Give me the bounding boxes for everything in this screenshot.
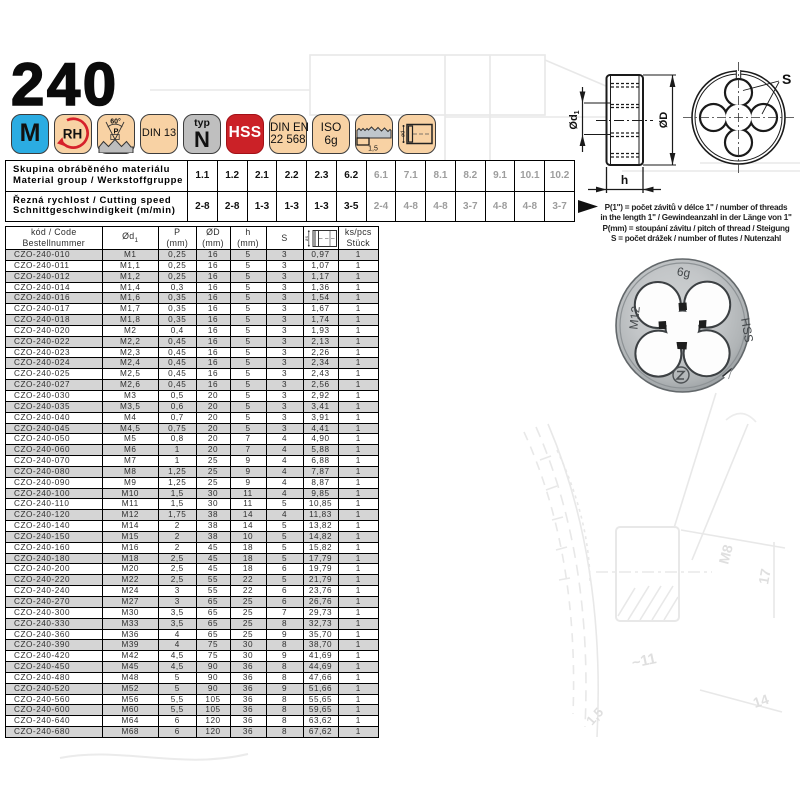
svg-text:60°: 60°: [110, 118, 121, 126]
svg-text:ØD: ØD: [658, 112, 670, 129]
svg-text:S: S: [782, 71, 791, 87]
svg-text:~11: ~11: [630, 650, 658, 672]
svg-text:17: 17: [755, 567, 773, 585]
svg-text:ød: ød: [401, 131, 407, 137]
svg-text:RH: RH: [63, 127, 83, 142]
svg-text:1,5: 1,5: [368, 146, 378, 153]
svg-text:1,5: 1,5: [583, 705, 606, 728]
svg-text:h: h: [621, 173, 628, 187]
svg-text:M8: M8: [715, 543, 736, 566]
svg-text:M12: M12: [626, 305, 642, 330]
svg-text:øs: øs: [304, 235, 309, 241]
svg-text:6g: 6g: [676, 264, 692, 280]
svg-text:Ød1: Ød1: [568, 110, 581, 129]
